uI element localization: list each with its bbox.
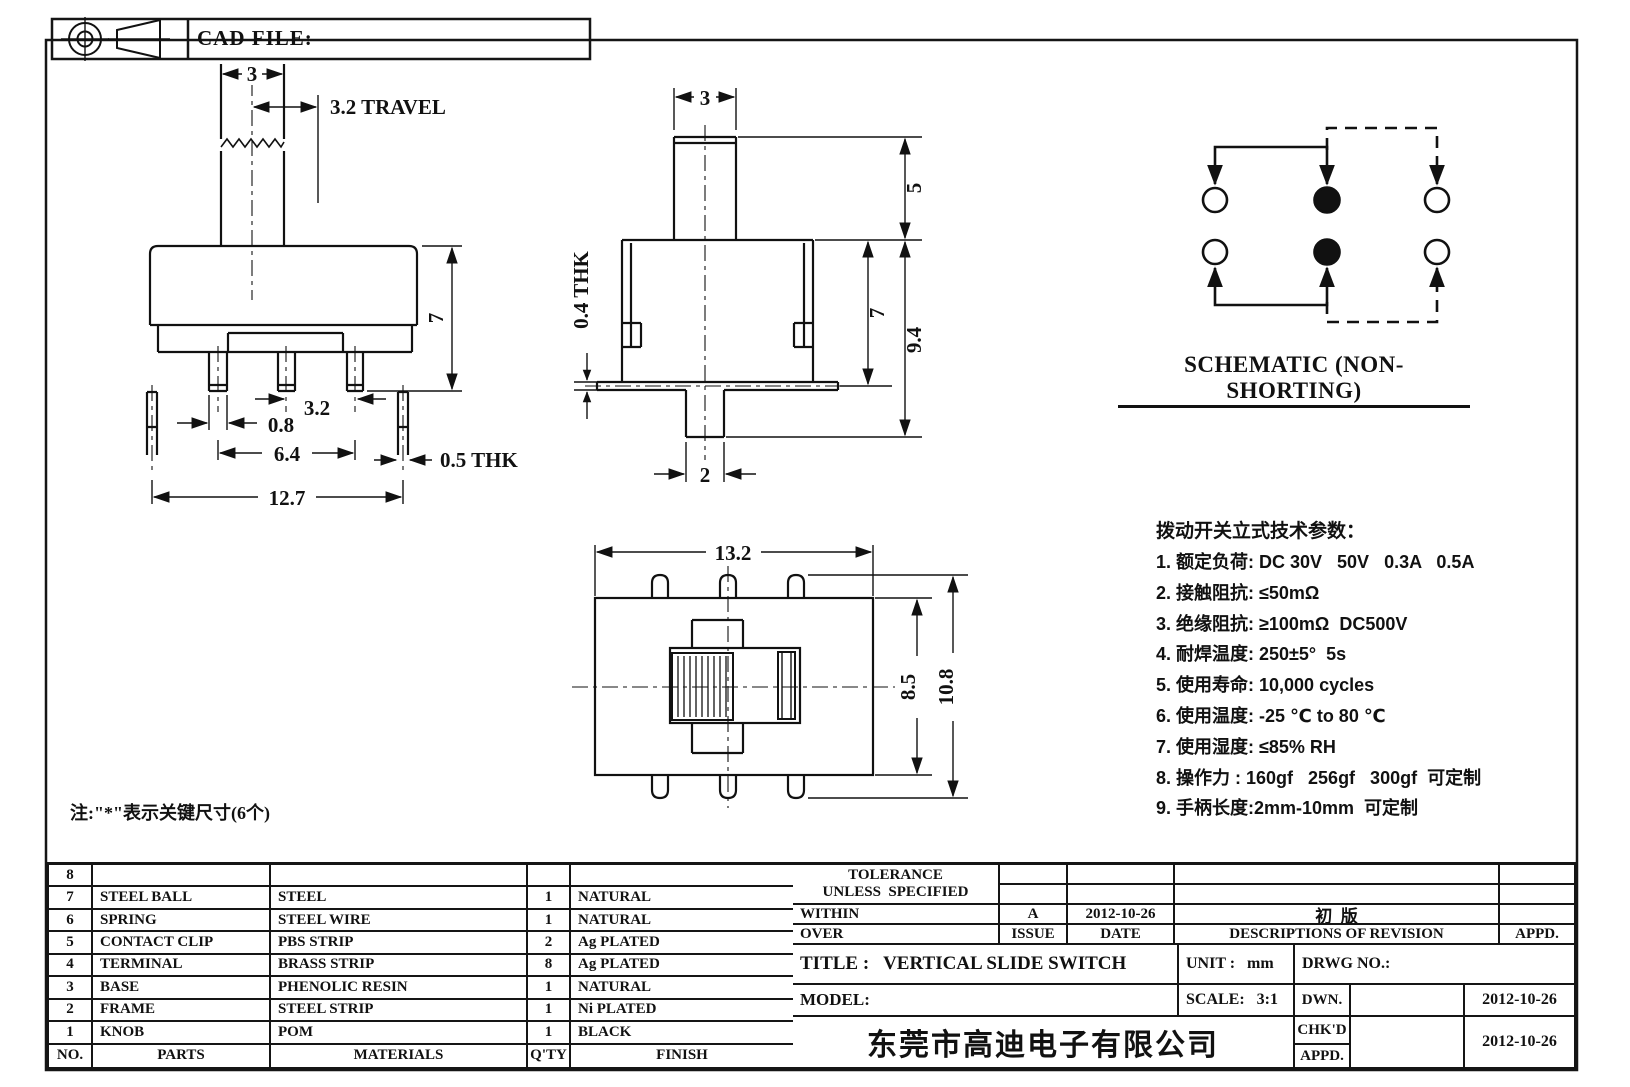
dim-travel: 3.2 TRAVEL [330,95,446,119]
parts-cell: 1 [528,1022,571,1044]
title-block-table: 8 7 STEEL BALL STEEL 1 NATURAL 6 SPRING … [46,862,1577,1070]
dim-total-depth: 10.8 [934,669,958,706]
title-block-right: TOLERANCE UNLESS SPECIFIED WITHIN A 2012… [793,865,1574,1067]
side-view: 3 5 7 9.4 2 0.4 THK [569,86,926,487]
drawing-page: 3 3.2 TRAVEL 7 3.2 0.8 6.4 12.7 0.5 THK [0,0,1630,1087]
parts-cell [528,865,571,887]
tolerance-revision-block: TOLERANCE UNLESS SPECIFIED WITHIN A 2012… [793,865,1574,945]
parts-cell: PBS STRIP [271,932,528,954]
scale-label: SCALE: 3:1 [1179,985,1295,1017]
parts-cell-no: 4 [49,955,93,977]
terminal-open [1203,188,1227,212]
projection-symbol-icon [61,17,170,61]
parts-cell: BASE [93,977,271,999]
schematic-diagram [1203,128,1449,322]
dim-body-height: 7 [865,308,889,319]
top-centerlines [572,566,895,808]
chkd-signature-empty [1351,1017,1465,1067]
revision-date: 2012-10-26 [1068,905,1175,925]
parts-cell: STEEL [271,887,528,909]
front-centerlines [152,80,403,470]
parts-cell: Ni PLATED [571,1000,793,1022]
parts-cell: KNOB [93,1022,271,1044]
issue-header: ISSUE [1000,925,1068,945]
descriptions-header: DESCRIPTIONS OF REVISION [1175,925,1500,945]
parts-cell: 2 [528,932,571,954]
parts-cell: PHENOLIC RESIN [271,977,528,999]
side-centerlines [585,125,850,460]
parts-list: 8 7 STEEL BALL STEEL 1 NATURAL 6 SPRING … [49,865,793,1067]
dim-knob-height: 5 [902,183,926,194]
parts-cell-no: 6 [49,910,93,932]
tech-param-item: 4. 耐焊温度: 250±5° 5s [1156,639,1586,670]
dim-body-depth: 8.5 [896,674,920,700]
parts-cell [93,865,271,887]
parts-cell: BRASS STRIP [271,955,528,977]
parts-cell: 8 [528,955,571,977]
appd-header: APPD. [1500,925,1574,945]
tech-params-title: 拨动开关立式技术参数： [1156,516,1586,547]
side-dim-lines [574,88,922,482]
tech-param-item: 6. 使用温度: -25 ℃ to 80 ℃ [1156,701,1586,732]
parts-cell: 1 [528,887,571,909]
tech-param-item: 1. 额定负荷: DC 30V 50V 0.3A 0.5A [1156,547,1586,578]
parts-cell: 1 [528,1000,571,1022]
parts-cell: 1 [528,977,571,999]
front-view: 3 3.2 TRAVEL 7 3.2 0.8 6.4 12.7 0.5 THK [147,62,518,510]
parts-header-finish: FINISH [571,1045,793,1067]
tech-params: 拨动开关立式技术参数： 1. 额定负荷: DC 30V 50V 0.3A 0.5… [1156,516,1586,824]
top-view: 13.2 8.5 10.8 [572,540,968,808]
tolerance-label-2: UNLESS SPECIFIED [823,884,969,901]
parts-header-parts: PARTS [93,1045,271,1067]
parts-cell: Ag PLATED [571,932,793,954]
parts-cell: 1 [528,910,571,932]
issue-value: A [1000,905,1068,925]
revision-cell-empty [1000,865,1068,885]
parts-cell-no: 1 [49,1022,93,1044]
chkd-label: CHK'D [1295,1017,1351,1045]
parts-cell: TERMINAL [93,955,271,977]
model-label: MODEL: [793,985,1179,1017]
dwn-signature-empty [1351,985,1465,1017]
dim-total-width: 12.7 [269,486,306,510]
dim-body-height: 7 [424,313,448,324]
revision-cell-empty [1500,865,1574,885]
parts-cell: FRAME [93,1000,271,1022]
top-dim-labels: 13.2 8.5 10.8 [706,540,966,721]
tolerance-label-1: TOLERANCE [848,867,943,884]
parts-cell-no: 5 [49,932,93,954]
terminal-open [1425,240,1449,264]
parts-cell [271,865,528,887]
parts-cell: BLACK [571,1022,793,1044]
title-info-block: TITLE : VERTICAL SLIDE SWITCH UNIT : mm … [793,945,1574,1067]
parts-cell-no: 3 [49,977,93,999]
front-dim-lines [152,74,462,504]
parts-cell-no: 8 [49,865,93,887]
parts-cell: STEEL WIRE [271,910,528,932]
parts-cell: NATURAL [571,887,793,909]
parts-header-materials: MATERIALS [271,1045,528,1067]
unit-label: UNIT : mm [1179,945,1295,985]
tech-param-item: 8. 操作力 : 160gf 256gf 300gf 可定制 [1156,763,1586,794]
parts-cell: NATURAL [571,977,793,999]
revision-cell-empty [1175,885,1500,905]
tech-param-item: 3. 绝缘阻抗: ≥100mΩ DC500V [1156,609,1586,640]
parts-cell [571,865,793,887]
parts-cell: STEEL STRIP [271,1000,528,1022]
revision-cell-empty [1000,885,1068,905]
chkd-date: 2012-10-26 [1465,1017,1574,1067]
dim-knob-width: 3 [700,86,711,110]
appd-label: APPD. [1295,1045,1351,1067]
terminal-common [1315,188,1340,213]
tech-param-item: 9. 手柄长度:2mm-10mm 可定制 [1156,793,1586,824]
dim-pin-width: 0.8 [268,413,294,437]
dim-pitch-span: 6.4 [274,442,301,466]
key-dimension-note: 注:"*"表示关键尺寸(6个) [70,799,270,825]
dim-width: 13.2 [715,541,752,565]
parts-cell: CONTACT CLIP [93,932,271,954]
revision-cell-empty [1175,865,1500,885]
terminal-open [1203,240,1227,264]
cad-file-label: CAD FILE: [197,26,313,51]
revision-cell-empty [1068,865,1175,885]
parts-cell: NATURAL [571,910,793,932]
parts-cell-no: 7 [49,887,93,909]
revision-description: 初 版 [1175,905,1500,925]
revision-cell-empty [1500,885,1574,905]
revision-cell-empty [1068,885,1175,905]
parts-cell: Ag PLATED [571,955,793,977]
drawing-title: TITLE : VERTICAL SLIDE SWITCH [793,945,1179,985]
dim-pin-pitch: 3.2 [304,396,330,420]
schematic-title: SCHEMATIC (NON-SHORTING) [1118,352,1470,408]
dwn-date: 2012-10-26 [1465,985,1574,1017]
dim-terminal-thk: 0.5 THK [440,448,518,472]
terminal-open [1425,188,1449,212]
drwg-no-label: DRWG NO.: [1295,945,1574,985]
terminal-common [1315,240,1340,265]
tech-param-item: 2. 接触阻抗: ≤50mΩ [1156,578,1586,609]
dim-knob-width: 3 [247,62,258,86]
parts-cell: SPRING [93,910,271,932]
tech-param-item: 7. 使用湿度: ≤85% RH [1156,732,1586,763]
parts-cell-no: 2 [49,1000,93,1022]
date-header: DATE [1068,925,1175,945]
tech-param-item: 5. 使用寿命: 10,000 cycles [1156,670,1586,701]
within-label: WITHIN [793,905,1000,925]
dim-pin-width: 2 [700,463,711,487]
parts-header-no: NO. [49,1045,93,1067]
dwn-label: DWN. [1295,985,1351,1017]
revision-appd-empty [1500,905,1574,925]
parts-cell: POM [271,1022,528,1044]
parts-cell: STEEL BALL [93,887,271,909]
over-label: OVER [793,925,1000,945]
dim-total-height: 9.4 [902,326,926,353]
parts-header-qty: Q'TY [528,1045,571,1067]
dim-flange-thk: 0.4 THK [569,250,593,328]
company-name: 东莞市高迪电子有限公司 [793,1017,1295,1067]
